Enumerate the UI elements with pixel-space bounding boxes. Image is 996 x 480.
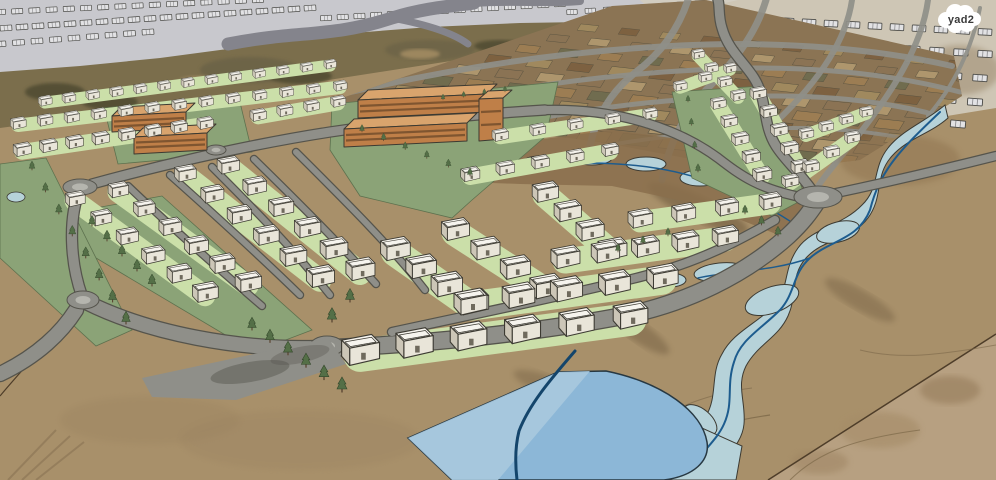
sketch-building (201, 0, 212, 5)
terrain-mottle (840, 412, 920, 448)
sketch-building (256, 8, 268, 14)
highway-sketch (474, 1, 580, 3)
sketch-building (160, 14, 172, 20)
sketch-building (31, 38, 43, 44)
masterplan-svg: yad2 (0, 0, 996, 480)
terrain-mottle (920, 376, 980, 404)
sketch-building (184, 0, 195, 6)
sketch-building (320, 15, 331, 21)
sketch-building (240, 9, 252, 15)
sketch-building (235, 0, 246, 4)
roundabout (794, 186, 842, 208)
sketch-building (890, 24, 904, 31)
sketch-building (967, 98, 982, 106)
sketch-building (64, 21, 76, 27)
sketch-building (868, 22, 882, 29)
sketch-building (824, 20, 838, 27)
sketch-building (144, 15, 156, 21)
sketch-building (86, 33, 98, 39)
sketch-building (105, 32, 117, 38)
sketch-building (950, 120, 965, 128)
sketch-building (252, 0, 263, 3)
sketch-building (567, 9, 578, 14)
sketch-building (0, 41, 6, 47)
sketch-building (48, 22, 60, 28)
sketch-building (12, 39, 24, 45)
sketch-building (32, 23, 44, 29)
sketch-building (46, 7, 57, 13)
masterplan-render: yad2 (0, 0, 996, 480)
sketch-building (12, 8, 23, 14)
sketch-building (978, 50, 993, 57)
sketch-building (218, 0, 229, 4)
sketch-building (63, 6, 74, 12)
sketch-building (0, 25, 12, 31)
sketch-building (0, 9, 6, 15)
sketch-building (115, 4, 126, 10)
sketch-building (208, 11, 220, 17)
sketch-building (288, 6, 300, 12)
sketch-building (166, 1, 177, 7)
sketch-building (224, 10, 236, 16)
terrain-mottle (60, 396, 240, 444)
sketch-building (68, 35, 80, 41)
sketch-building (112, 18, 124, 24)
sketch-building (29, 8, 40, 14)
roundabout (206, 145, 226, 155)
sketch-building (80, 20, 92, 26)
sketch-building (973, 74, 988, 82)
hill-texture (400, 49, 440, 59)
sketch-building (132, 3, 143, 9)
sketch-building (98, 4, 109, 10)
sketch-building (978, 28, 992, 35)
sketch-building (123, 30, 135, 36)
sketch-building (96, 19, 108, 25)
sketch-building (304, 5, 316, 11)
sketch-building (142, 29, 154, 35)
watermark-label: yad2 (948, 14, 974, 26)
sketch-building (149, 2, 160, 8)
sketch-building (128, 16, 140, 22)
sketch-building (272, 7, 284, 13)
sketch-building (354, 13, 365, 19)
roundabout (67, 291, 99, 309)
sketch-building (16, 24, 28, 30)
sketch-building (49, 36, 61, 42)
small-pond (7, 192, 25, 202)
sketch-building (337, 14, 348, 20)
sketch-building (192, 12, 204, 18)
sketch-building (80, 5, 91, 11)
school-building-center (344, 84, 512, 147)
sketch-building (176, 13, 188, 19)
